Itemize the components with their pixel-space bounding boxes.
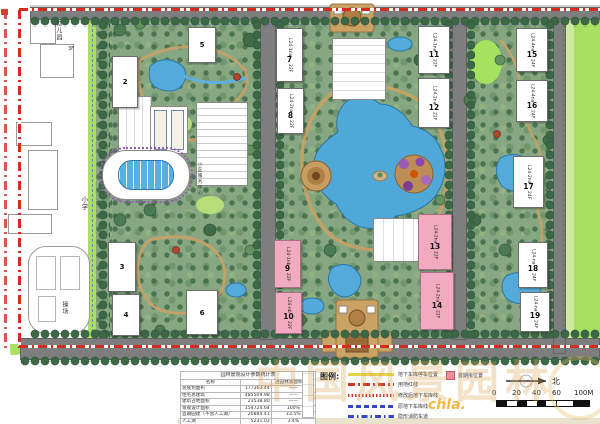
building-floors: 22F — [435, 310, 440, 318]
site-label-kindergarten: 幼儿园 — [54, 20, 63, 41]
building-14: L24-2na1422F — [420, 272, 454, 330]
land-red-line — [348, 383, 394, 386]
basketball-court-1 — [154, 110, 167, 150]
building-floors: 22F — [432, 59, 437, 67]
north-label: 北 — [552, 376, 560, 387]
building-code: L24-2na — [433, 225, 438, 243]
building-number: 10 — [283, 313, 293, 321]
scale-tick: 60 — [552, 389, 561, 397]
building-floors: 24F — [531, 273, 536, 281]
building-floors: 22F — [432, 112, 437, 120]
building-code: L24-1nb — [285, 247, 290, 265]
building-floors: 24F — [530, 110, 535, 118]
red-line-north — [19, 8, 600, 11]
building-3: 3 — [108, 242, 136, 292]
legend-label: 地下车库停车位置 — [398, 371, 438, 378]
building-floors: 22F — [286, 321, 291, 329]
phase1-building-swatch — [446, 371, 455, 380]
legend-item: 地下车库停车位置 — [348, 369, 438, 380]
building-number: 15 — [527, 51, 537, 59]
red-line-far-west — [4, 10, 7, 348]
building-10: L24-nb1022F — [275, 292, 302, 334]
building-floors: 24F — [533, 320, 538, 328]
building-12: L24-2na1222F — [418, 78, 450, 128]
building-code: L24-2nd — [526, 165, 531, 183]
scale-tick: 0 — [492, 389, 496, 397]
table-cell-name: 人工湖 — [181, 418, 241, 424]
table-cell-val: 5231.03 — [240, 418, 271, 424]
building-7: L24-1na722F — [276, 28, 303, 82]
hidden-fire-lane — [348, 415, 394, 418]
central-white-building — [373, 218, 421, 262]
tree-row-north — [30, 16, 600, 27]
site-plan-page: 25346L24-1na722FL24-2na822FL24-1nb922FL2… — [0, 0, 600, 424]
legend-item: 原地下车库线 — [348, 401, 438, 412]
legend-label: 原地下车库线 — [398, 403, 428, 410]
building-2: 2 — [112, 56, 138, 108]
building-9: L24-1nb922F — [274, 240, 301, 288]
legend-heading: 图例: — [320, 371, 339, 382]
statistics-table: 园林景观设计参数统计表 名称 占园林总面积比例 总规划面积177363.44——… — [180, 371, 316, 424]
plaza-east-of-lake — [395, 155, 433, 193]
table-cell-pct: 3.4% — [271, 418, 315, 424]
building-number: 14 — [432, 302, 442, 310]
north-arrow: 北 — [500, 373, 570, 389]
building-floors: 22F — [287, 64, 292, 72]
building-11: L24-1na1122F — [418, 26, 450, 74]
table-cell-val: 177363.44 — [240, 386, 271, 393]
building-code: L24-na — [533, 296, 538, 311]
underground-garage-parking-line — [348, 373, 394, 376]
legend: 地下车库停车位置用地红线修改后地下车库线原地下车库线隐形消防车道 — [348, 369, 438, 422]
building-13: L24-2na1322F — [418, 214, 452, 270]
site-label-kindergarten-floors: 3F — [68, 46, 74, 52]
original-garage-line — [348, 405, 394, 408]
community-center-building — [332, 38, 386, 100]
legend-label: 用地红线 — [398, 381, 418, 388]
building-18: L24-na1824F — [518, 242, 548, 288]
table-cell-val: 485509.98 — [240, 392, 271, 399]
red-corner-mark — [1, 9, 8, 15]
table-row: 首期园建（不含人工湖）20884.4113.5% — [181, 412, 316, 419]
building-number: 9 — [285, 265, 290, 273]
building-floors: 22F — [288, 120, 293, 128]
building-floors: 22F — [285, 273, 290, 281]
scale-bar-segments — [496, 400, 590, 407]
swimming-pool — [118, 160, 174, 190]
building-code: L24-4na — [530, 84, 535, 102]
building-number: 16 — [527, 102, 537, 110]
building-15: L24-4na1524F — [516, 28, 548, 72]
legend-label: 隐形消防车道 — [398, 413, 428, 420]
building-code: L24-2na — [288, 94, 293, 112]
legend-extra-item: 首期房位置 — [446, 371, 483, 380]
building-number: 17 — [523, 183, 533, 191]
building-number: 18 — [528, 265, 538, 273]
table-row: 总规划面积177363.44—— — [181, 386, 316, 393]
legend-item: 用地红线 — [348, 380, 438, 391]
building-5: 5 — [188, 27, 216, 63]
lake-island — [373, 171, 387, 181]
table-cell-name: 首期园建（不含人工湖） — [181, 412, 241, 419]
site-label-service-center: 小区服务中心 — [196, 162, 202, 196]
building-number: 6 — [200, 309, 205, 317]
phase1-building-label: 首期房位置 — [458, 372, 483, 379]
building-number: 8 — [288, 112, 293, 120]
revised-basement-line — [348, 394, 394, 397]
table-title: 园林景观设计参数统计表 — [181, 372, 316, 380]
building-16: L24-4na1624F — [516, 80, 548, 122]
building-number: 4 — [124, 311, 129, 319]
building-number: 7 — [287, 56, 292, 64]
building-number: 3 — [120, 263, 125, 271]
table-row: 人工湖5231.033.4% — [181, 418, 316, 424]
tree-row-road-b-east — [466, 20, 475, 338]
building-floors: 22F — [433, 251, 438, 259]
legend-label: 修改后地下车库线 — [398, 392, 438, 399]
scale-bar: 0204060100M — [492, 389, 598, 411]
clubhouse-rooms-block — [196, 102, 248, 186]
basketball-court-2 — [171, 110, 184, 150]
table-row: 建筑占地面积23538.80—— — [181, 399, 316, 406]
scale-numbers: 0204060100M — [492, 389, 598, 398]
building-17: L24-2nd1724F — [513, 156, 544, 208]
building-number: 12 — [429, 104, 439, 112]
building-code: L24-1na — [432, 33, 437, 51]
building-code: L24-2na — [432, 86, 437, 104]
building-code: L24-na — [531, 249, 536, 264]
building-floors: 24F — [526, 191, 531, 199]
scale-tick: 20 — [512, 389, 521, 397]
scale-end-label: 100M — [574, 389, 593, 397]
building-number: 19 — [530, 312, 540, 320]
building-number: 11 — [429, 51, 439, 59]
table-cell-val: 154724.64 — [240, 405, 271, 412]
legend-item: 修改后地下车库线 — [348, 390, 438, 401]
tree-row-south-lower — [20, 356, 600, 366]
building-number: 13 — [430, 243, 440, 251]
scale-tick: 40 — [532, 389, 541, 397]
table-row: 景观设计面积154724.64100% — [181, 405, 316, 412]
red-line-south — [19, 345, 600, 348]
building-code: L24-4na — [530, 33, 535, 51]
site-label-playground: 操场 — [60, 301, 69, 315]
building-code: L24-1na — [287, 38, 292, 56]
building-19: L24-na1924F — [520, 292, 550, 332]
building-code: L24-nb — [286, 297, 291, 313]
building-4: 4 — [112, 294, 140, 336]
plaza-west-of-lake — [301, 161, 331, 191]
building-6: 6 — [186, 290, 218, 335]
building-code: L24-2na — [435, 284, 440, 302]
table-row: 住宅总建筑485509.98—— — [181, 392, 316, 399]
tree-row-road-a-west — [252, 20, 261, 338]
legend-item: 隐形消防车道 — [348, 411, 438, 422]
red-line-west — [18, 10, 21, 348]
building-number: 2 — [123, 78, 128, 86]
site-label-primary-school: 小学 — [79, 196, 89, 211]
building-number: 5 — [200, 41, 205, 49]
building-8: L24-2na822F — [277, 88, 304, 134]
side-note-box — [302, 371, 314, 418]
building-floors: 24F — [530, 59, 535, 67]
